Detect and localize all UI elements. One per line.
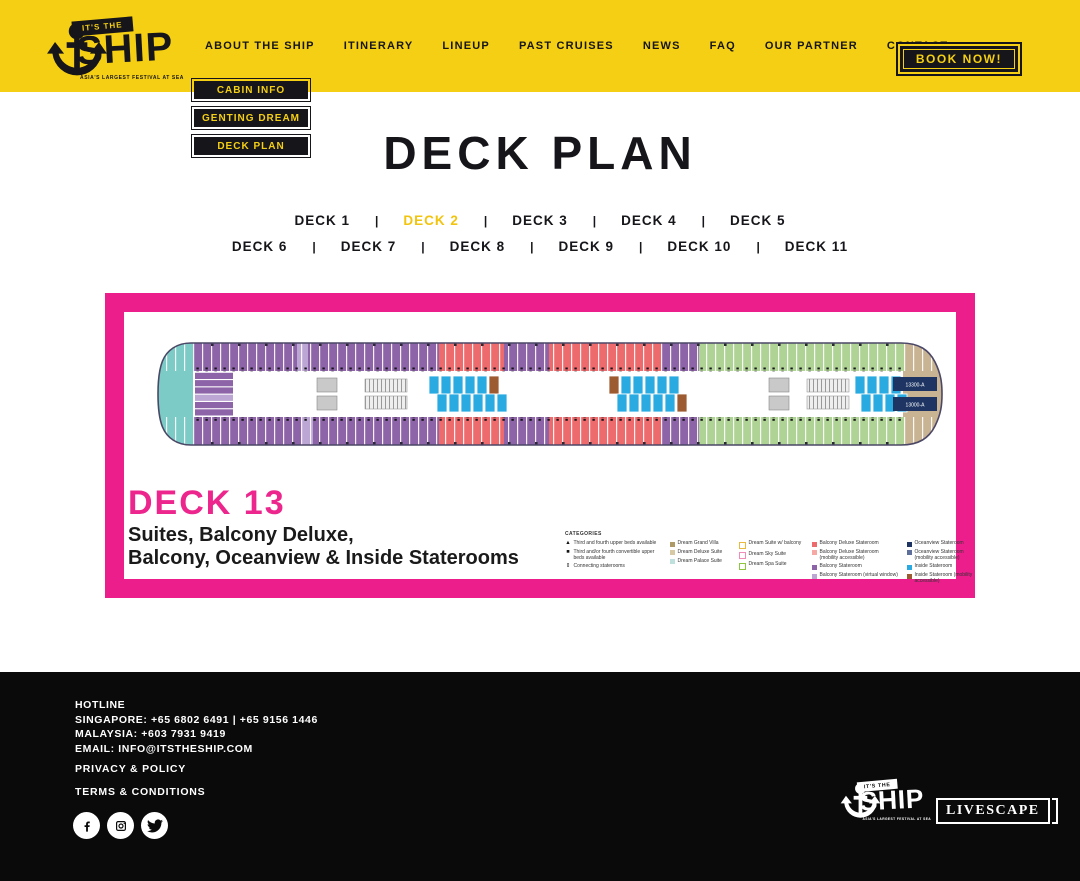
deck-link-deck-4[interactable]: DECK 4 xyxy=(621,213,677,228)
deck-link-deck-2[interactable]: DECK 2 xyxy=(403,213,459,228)
deck-link-deck-6[interactable]: DECK 6 xyxy=(232,239,288,254)
legend-label: Third and fourth upper beds available xyxy=(574,541,657,547)
deck-nav: DECK 1|DECK 2|DECK 3|DECK 4|DECK 5 DECK … xyxy=(0,213,1080,254)
book-now-label: BOOK NOW! xyxy=(900,46,1018,72)
legend-color-swatch xyxy=(670,542,675,547)
dropdown-item-label: CABIN INFO xyxy=(217,85,285,96)
footer-ship-logo: IT'S THE SHIP ASIA'S LARGEST FESTIVAL AT… xyxy=(840,770,939,828)
legend-color-swatch xyxy=(812,574,817,579)
deck-link-deck-1[interactable]: DECK 1 xyxy=(294,213,350,228)
deck-link-deck-3[interactable]: DECK 3 xyxy=(512,213,568,228)
legend-column: Dream Grand VillaDream Deluxe SuiteDream… xyxy=(670,541,730,588)
deck-nav-separator: | xyxy=(312,240,315,254)
legend-label: Third and/or fourth convertible upper be… xyxy=(574,550,662,562)
legend-item: ■Third and/or fourth convertible upper b… xyxy=(565,550,661,562)
svg-text:13000-A: 13000-A xyxy=(906,403,926,409)
logo-tagline: ASIA'S LARGEST FESTIVAL AT SEA xyxy=(862,818,931,822)
legend-color-swatch xyxy=(907,550,912,555)
nav-item-about-the-ship[interactable]: ABOUT THE SHIP xyxy=(205,40,315,52)
dropdown-item-genting-dream[interactable]: GENTING DREAM xyxy=(191,106,311,130)
legend-title: CATEGORIES xyxy=(565,531,957,537)
deck-nav-separator: | xyxy=(639,240,642,254)
legend-label: Oceanview Stateroom (mobility accessible… xyxy=(915,550,984,562)
legend-item: Balcony Deluxe Stateroom xyxy=(812,541,898,547)
site-header: IT'S THE SHIP ASIA'S LARGEST FESTIVAL AT… xyxy=(0,0,1080,92)
deck-subtitle-line-2: Balcony, Oceanview & Inside Staterooms xyxy=(128,547,519,570)
deck-link-deck-7[interactable]: DECK 7 xyxy=(341,239,397,254)
legend-item: Dream Grand Villa xyxy=(670,541,730,547)
legend-color-swatch xyxy=(739,552,746,559)
legend-symbol-icon: ■ xyxy=(565,550,571,556)
book-now-button[interactable]: BOOK NOW! xyxy=(896,42,1022,76)
deck-link-deck-8[interactable]: DECK 8 xyxy=(450,239,506,254)
site-footer: HOTLINE SINGAPORE: +65 6802 6491 | +65 9… xyxy=(0,672,1080,881)
legend-color-swatch xyxy=(812,565,817,570)
legend-column: ▲Third and fourth upper beds available■T… xyxy=(565,541,661,588)
deck-nav-separator: | xyxy=(484,214,487,228)
legend-item: ▲Third and fourth upper beds available xyxy=(565,541,661,547)
legend-label: Dream Deluxe Suite xyxy=(678,550,723,556)
legend-label: Dream Grand Villa xyxy=(678,541,719,547)
legend-color-swatch xyxy=(907,565,912,570)
legend-color-swatch xyxy=(812,550,817,555)
hotline-title: HOTLINE xyxy=(75,698,318,713)
legend-item: ⇕Connecting staterooms xyxy=(565,564,661,570)
legend-label: Inside Stateroom xyxy=(915,564,953,570)
legend-item: Dream Palace Suite xyxy=(670,559,730,565)
legend-color-swatch xyxy=(670,559,675,564)
legend-label: Oceanview Stateroom xyxy=(915,541,964,547)
hotline-block: HOTLINE SINGAPORE: +65 6802 6491 | +65 9… xyxy=(75,698,318,756)
main-nav: ABOUT THE SHIPITINERARYLINEUPPAST CRUISE… xyxy=(205,0,948,92)
deck-link-deck-10[interactable]: DECK 10 xyxy=(667,239,731,254)
deck-subtitle: Suites, Balcony Deluxe, Balcony, Oceanvi… xyxy=(128,524,519,570)
legend-label: Balcony Deluxe Stateroom xyxy=(820,541,879,547)
deck-nav-separator: | xyxy=(530,240,533,254)
terms-conditions-link[interactable]: TERMS & CONDITIONS xyxy=(75,786,205,798)
legend-symbol-icon: ⇕ xyxy=(565,564,571,570)
legend-color-swatch xyxy=(739,542,746,549)
livescape-label: LIVESCAPE xyxy=(936,798,1050,824)
dropdown-item-deck-plan[interactable]: DECK PLAN xyxy=(191,134,311,158)
hotline-malaysia: MALAYSIA: +603 7931 9419 xyxy=(75,727,318,742)
legend-label: Inside Stateroom (mobility accessible) xyxy=(915,573,984,585)
legend-color-swatch xyxy=(739,563,746,570)
dropdown-item-label: DECK PLAN xyxy=(217,141,284,152)
deck-nav-separator: | xyxy=(702,214,705,228)
dropdown-item-cabin-info[interactable]: CABIN INFO xyxy=(191,78,311,102)
legend-label: Dream Sky Suite xyxy=(749,552,787,558)
svg-text:13300-A: 13300-A xyxy=(906,383,926,389)
legend-item: Oceanview Stateroom (mobility accessible… xyxy=(907,550,983,562)
legend-color-swatch xyxy=(907,574,912,579)
deck-nav-row-2: DECK 6|DECK 7|DECK 8|DECK 9|DECK 10|DECK… xyxy=(232,239,848,254)
deck-plan-panel: 13300-A13000-A DECK 13 Suites, Balcony D… xyxy=(105,293,975,598)
nav-item-news[interactable]: NEWS xyxy=(643,40,681,52)
legend-color-swatch xyxy=(907,542,912,547)
nav-item-our-partner[interactable]: OUR PARTNER xyxy=(765,40,858,52)
legend-label: Dream Suite w/ balcony xyxy=(749,541,802,547)
livescape-tab xyxy=(1052,798,1058,824)
legend-column: Dream Suite w/ balconyDream Sky SuiteDre… xyxy=(739,541,803,588)
instagram-icon[interactable] xyxy=(107,812,134,839)
logo-main-text: SHIP xyxy=(859,785,925,815)
site-logo[interactable]: IT'S THE SHIP ASIA'S LARGEST FESTIVAL AT… xyxy=(46,3,196,91)
legend-item: Dream Spa Suite xyxy=(739,562,803,570)
legend-color-swatch xyxy=(670,550,675,555)
legend-item: Dream Suite w/ balcony xyxy=(739,541,803,549)
deck-link-deck-5[interactable]: DECK 5 xyxy=(730,213,786,228)
deck-heading: DECK 13 xyxy=(128,484,286,523)
legend-item: Inside Stateroom (mobility accessible) xyxy=(907,573,983,585)
logo-main-text: SHIP xyxy=(75,26,174,71)
deck-13-ship-map: 13300-A13000-A xyxy=(157,338,943,450)
legend-item: Inside Stateroom xyxy=(907,564,983,570)
logo-tagline: ASIA'S LARGEST FESTIVAL AT SEA xyxy=(80,75,184,81)
social-links xyxy=(73,812,168,839)
deck-nav-separator: | xyxy=(756,240,759,254)
legend-item: Balcony Deluxe Stateroom (mobility acces… xyxy=(812,550,898,562)
dropdown-item-label: GENTING DREAM xyxy=(202,113,300,124)
nav-item-lineup[interactable]: LINEUP xyxy=(442,40,490,52)
legend-label: Balcony Stateroom (virtual window) xyxy=(820,573,898,579)
twitter-icon[interactable] xyxy=(141,812,168,839)
cabin-legend: CATEGORIES ▲Third and fourth upper beds … xyxy=(565,531,957,588)
privacy-policy-link[interactable]: PRIVACY & POLICY xyxy=(75,763,186,775)
legend-item: Balcony Stateroom xyxy=(812,564,898,570)
legend-column: Oceanview StateroomOceanview Stateroom (… xyxy=(907,541,983,588)
legend-label: Balcony Deluxe Stateroom (mobility acces… xyxy=(820,550,899,562)
legend-item: Dream Sky Suite xyxy=(739,552,803,560)
legend-column: Balcony Deluxe StateroomBalcony Deluxe S… xyxy=(812,541,898,588)
legend-symbol-icon: ▲ xyxy=(565,541,571,547)
legend-label: Balcony Stateroom xyxy=(820,564,862,570)
nav-item-past-cruises[interactable]: PAST CRUISES xyxy=(519,40,614,52)
legend-item: Oceanview Stateroom xyxy=(907,541,983,547)
deck-nav-separator: | xyxy=(421,240,424,254)
deck-link-deck-9[interactable]: DECK 9 xyxy=(559,239,615,254)
legend-columns: ▲Third and fourth upper beds available■T… xyxy=(565,541,957,588)
deck-subtitle-line-1: Suites, Balcony Deluxe, xyxy=(128,524,519,547)
deck-nav-row-1: DECK 1|DECK 2|DECK 3|DECK 4|DECK 5 xyxy=(294,213,785,228)
nav-item-faq[interactable]: FAQ xyxy=(710,40,736,52)
legend-item: Dream Deluxe Suite xyxy=(670,550,730,556)
deck-nav-separator: | xyxy=(593,214,596,228)
hotline-singapore: SINGAPORE: +65 6802 6491 | +65 9156 1446 xyxy=(75,713,318,728)
legend-item: Balcony Stateroom (virtual window) xyxy=(812,573,898,579)
legend-label: Connecting staterooms xyxy=(574,564,625,570)
deck-link-deck-11[interactable]: DECK 11 xyxy=(785,239,848,254)
deck-nav-separator: | xyxy=(375,214,378,228)
facebook-icon[interactable] xyxy=(73,812,100,839)
legend-label: Dream Palace Suite xyxy=(678,559,722,565)
nav-item-itinerary[interactable]: ITINERARY xyxy=(344,40,414,52)
legend-label: Dream Spa Suite xyxy=(749,562,787,568)
legend-color-swatch xyxy=(812,542,817,547)
about-the-ship-dropdown: CABIN INFOGENTING DREAMDECK PLAN xyxy=(191,78,311,162)
livescape-logo[interactable]: LIVESCAPE xyxy=(936,798,1058,824)
page-title: DECK PLAN xyxy=(0,126,1080,180)
hotline-email: EMAIL: INFO@ITSTHESHIP.COM xyxy=(75,742,318,757)
